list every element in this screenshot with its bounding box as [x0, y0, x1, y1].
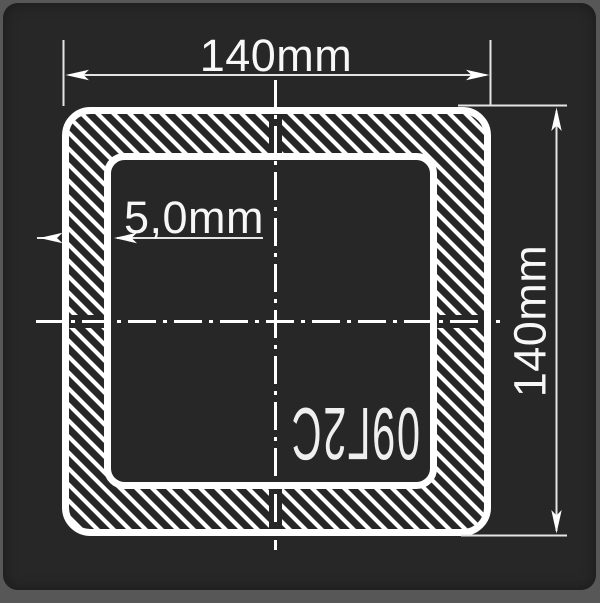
height-dimension-label: 140mm: [508, 245, 553, 398]
width-dimension-label: 140mm: [200, 33, 353, 78]
arrow-wall-outer-icon: [40, 233, 63, 243]
wall-thickness-label: 5,0mm: [124, 195, 264, 240]
steel-grade-marking: 09Г2С: [290, 396, 420, 470]
drawing-panel: 140mm 5,0mm 140mm 09Г2С: [3, 3, 596, 590]
